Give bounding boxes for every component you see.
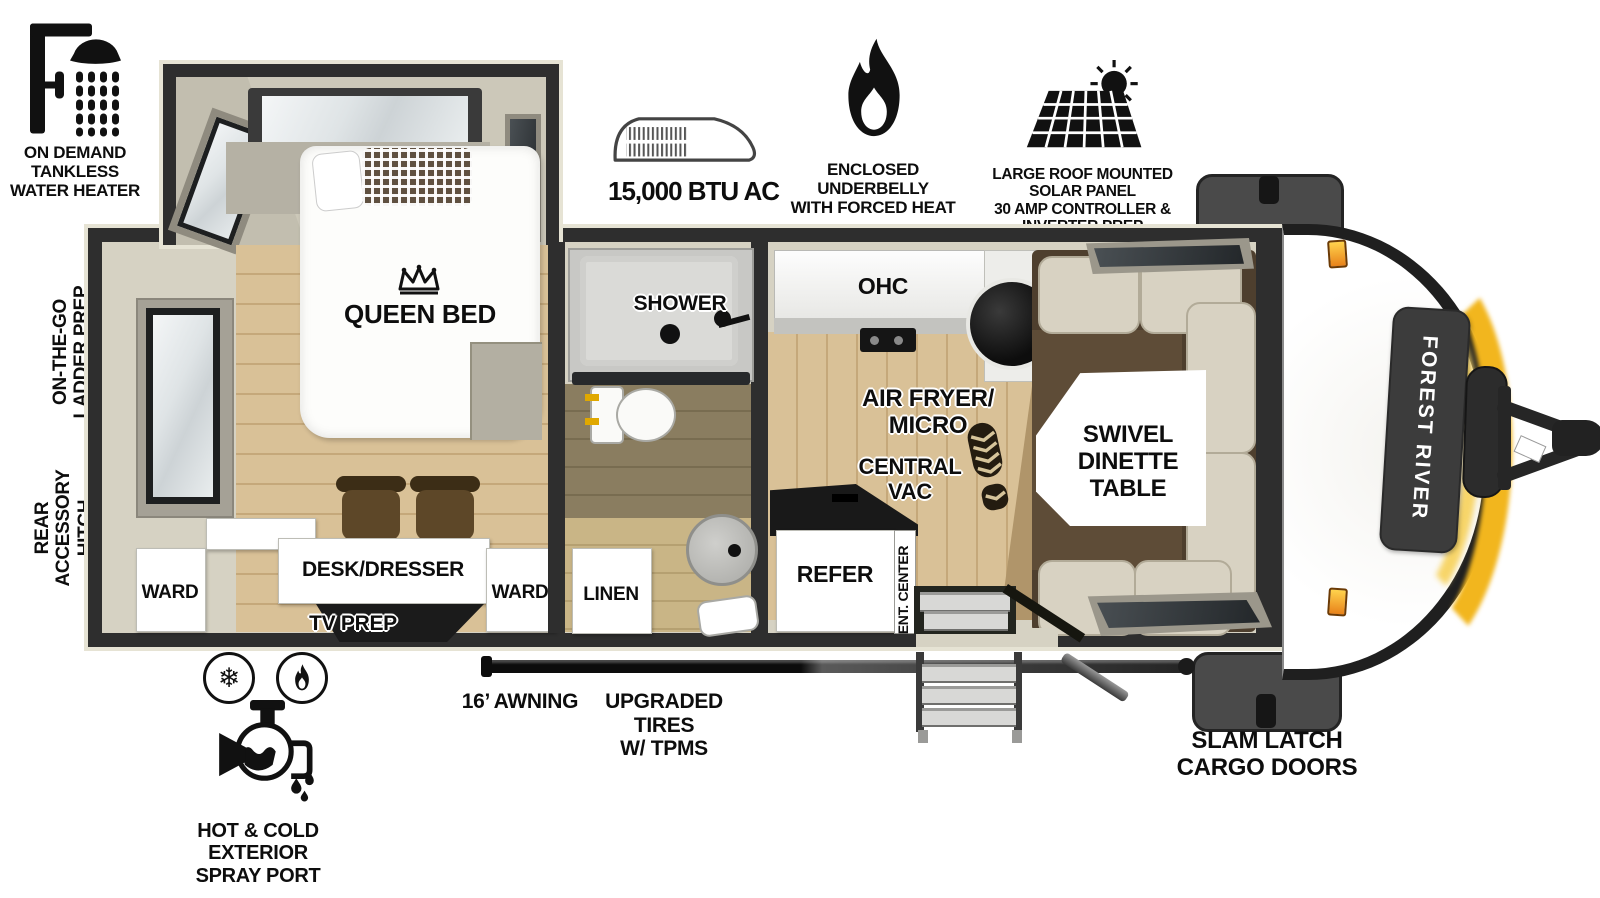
ent-center-label: ENT. CENTER (896, 534, 912, 646)
bath-faucet (728, 544, 741, 557)
crown-icon (394, 262, 444, 298)
rear-hitch-label: REAR ACCESSORY HITCH (32, 438, 96, 618)
living-window-top-glass (1094, 245, 1244, 267)
shower-door (572, 372, 750, 385)
bed-pillow-checkered (362, 148, 472, 206)
hitch-cross-bar (1498, 386, 1511, 490)
boot-print-icon (964, 420, 1016, 518)
bed-skylight-glass (262, 96, 468, 142)
entry-steps-tread (922, 664, 1016, 683)
flame-icon (833, 34, 915, 146)
dinette-label: SWIVEL DINETTE TABLE (1048, 422, 1208, 503)
cargo-latch-icon (1259, 176, 1279, 204)
marker-light (1327, 239, 1348, 268)
wall-bed-bath (548, 242, 565, 633)
cold-badge: ❄ (203, 652, 255, 704)
cooktop (860, 328, 916, 352)
wardrobe-right-label: WARD (486, 582, 554, 603)
ohc-label: OHC (838, 274, 928, 300)
floorplan-diagram: ON DEMAND TANKLESS WATER HEATER 15,000 B… (0, 0, 1600, 898)
solar-panel-icon (1015, 60, 1155, 160)
towel-bar (585, 394, 599, 401)
flame-small-icon (291, 663, 313, 693)
kitchen-faucet (832, 494, 858, 502)
awning-label: 16’ AWNING (445, 690, 595, 714)
towel-bar (585, 418, 599, 425)
cooktop-knob (870, 336, 879, 345)
desk-chair (416, 490, 474, 540)
tires-label: UPGRADED TIRES W/ TPMS (575, 690, 753, 761)
linen-label: LINEN (572, 584, 650, 605)
entry-steps-foot (1012, 730, 1022, 743)
entry-steps-foot (918, 730, 928, 743)
entry-step (924, 611, 1008, 631)
desk-chair (342, 490, 400, 540)
toilet (616, 388, 676, 442)
bedside-step (470, 342, 542, 440)
awning-end-cap (481, 656, 492, 677)
hot-badge (276, 652, 328, 704)
bath-sink (686, 514, 758, 586)
spray-port-icon (200, 698, 335, 806)
shower-label: SHOWER (610, 292, 750, 316)
desk-dresser-label: DESK/DRESSER (288, 558, 478, 582)
shower-drain (660, 324, 680, 344)
entry-steps-tread (922, 708, 1016, 727)
ac-unit-icon (606, 106, 762, 172)
wardrobe-left-label: WARD (136, 582, 204, 603)
bedroom-left-window-glass (153, 315, 213, 497)
underbelly-label: ENCLOSED UNDERBELLY WITH FORCED HEAT (790, 160, 956, 217)
ac-label: 15,000 BTU AC (601, 177, 786, 206)
entry-steps-tread (922, 686, 1016, 705)
cargo-doors-label: SLAM LATCH CARGO DOORS (1157, 728, 1377, 782)
marker-light (1327, 587, 1348, 616)
spray-port-label: HOT & COLD EXTERIOR SPRAY PORT (158, 820, 358, 887)
awning-end-cap (1178, 658, 1195, 675)
cooktop-knob (894, 336, 903, 345)
tv-prep-label: TV PREP (288, 612, 418, 636)
queen-bed-label: QUEEN BED (330, 300, 510, 329)
hitch-coupler (1552, 420, 1600, 456)
entry-step (920, 592, 1010, 612)
solar-label: LARGE ROOF MOUNTED SOLAR PANEL 30 AMP CO… (970, 166, 1195, 235)
water-heater-label: ON DEMAND TANKLESS WATER HEATER (0, 143, 150, 200)
refer-label: REFER (776, 562, 894, 588)
shower-head-icon (24, 20, 124, 138)
snowflake-icon: ❄ (218, 665, 241, 692)
bed-pillow (311, 150, 365, 213)
cargo-latch-icon (1256, 694, 1276, 728)
